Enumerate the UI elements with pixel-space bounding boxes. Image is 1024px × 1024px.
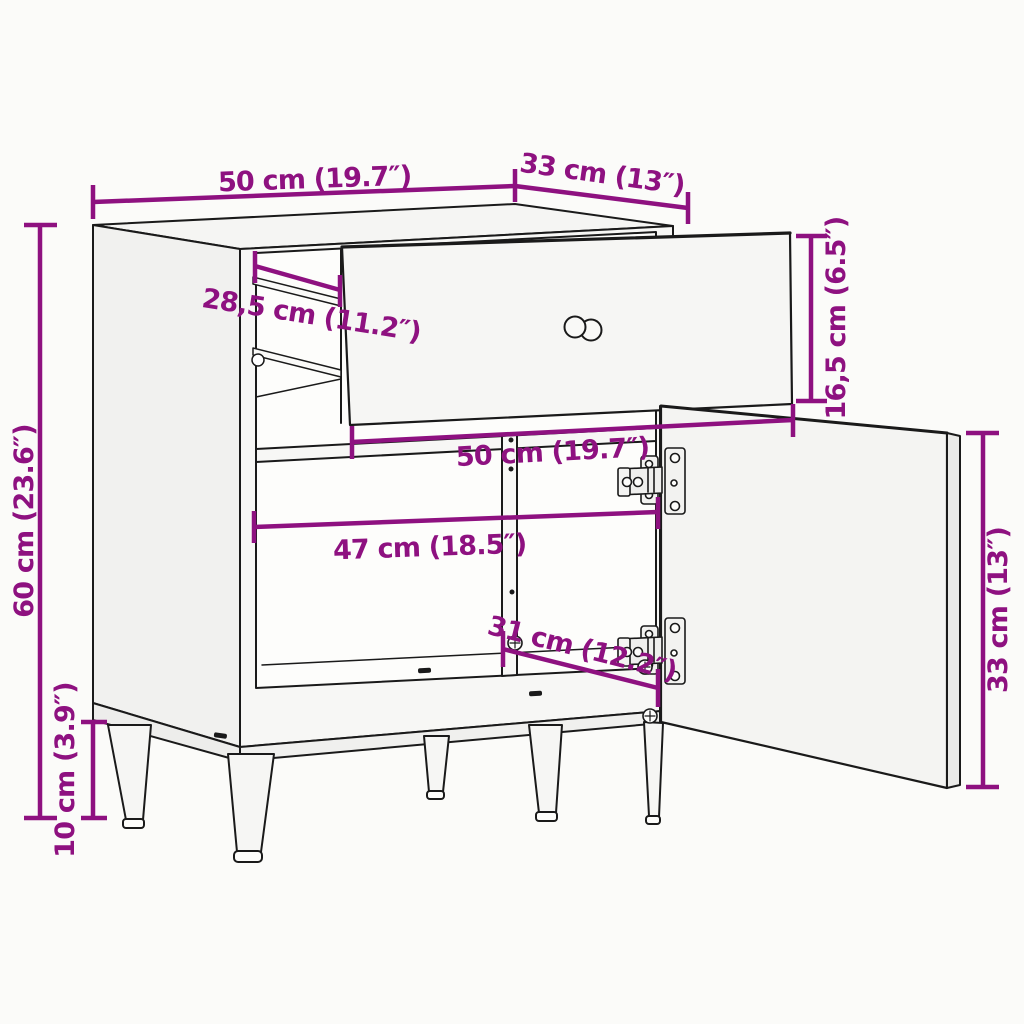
label-leg-height: 10 cm (3.9″) [50, 682, 81, 858]
door-edge-thickness [947, 433, 960, 788]
leg-front-left-foot [234, 851, 262, 862]
label-drawer-front-height: 16,5 cm (6.5″) [821, 217, 852, 420]
hinge-top-arm-screw-2 [634, 478, 643, 487]
hinge-top-arm-screw-1 [623, 478, 632, 487]
door-face [661, 406, 947, 788]
cabinet-dimension-diagram: 50 cm (19.7″) 33 cm (13″) 16,5 cm (6.5″)… [0, 0, 1024, 1024]
drawer-slide-roller [252, 354, 264, 366]
door [660, 406, 960, 788]
hinge-top-door-screw-2 [671, 502, 680, 511]
leg-back-middle-foot [427, 791, 444, 799]
leg-front-middle-foot [536, 812, 557, 821]
leg-back-left-foot [123, 819, 144, 828]
hinge-bottom-screw-1 [646, 631, 653, 638]
hinge-bottom-door-screw-1 [671, 624, 680, 633]
hinge-top-door-screw-1 [671, 454, 680, 463]
label-overall-height: 60 cm (23.6″) [9, 424, 40, 617]
drawer-knob [565, 317, 586, 338]
diagram-canvas: 50 cm (19.7″) 33 cm (13″) 16,5 cm (6.5″)… [0, 0, 1024, 1024]
label-door-height: 33 cm (13″) [983, 527, 1014, 693]
leg-front-right-foot [646, 816, 660, 824]
hinge-top-door-pin [671, 480, 677, 486]
